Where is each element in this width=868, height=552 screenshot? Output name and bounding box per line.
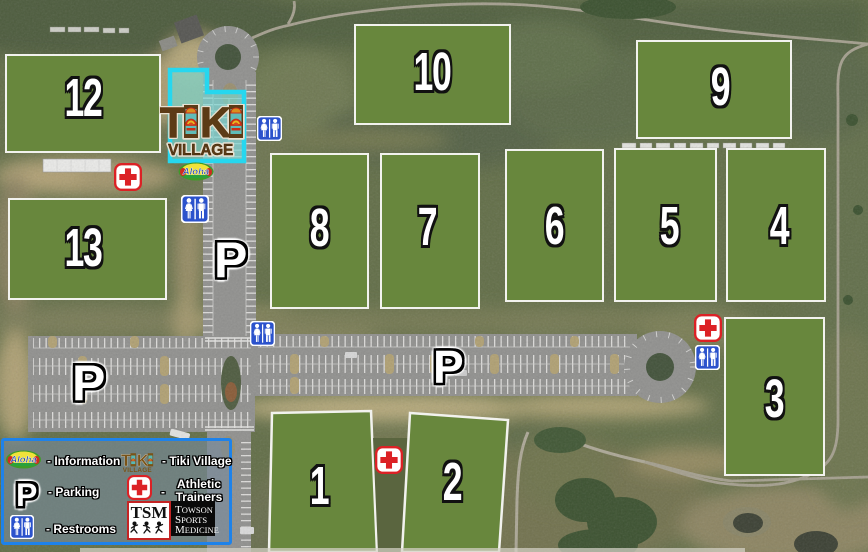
svg-text:T: T — [160, 104, 186, 147]
svg-text:K: K — [200, 104, 231, 147]
svg-text:VILLAGE: VILLAGE — [168, 142, 233, 157]
svg-text:VILLAGE: VILLAGE — [123, 467, 152, 473]
